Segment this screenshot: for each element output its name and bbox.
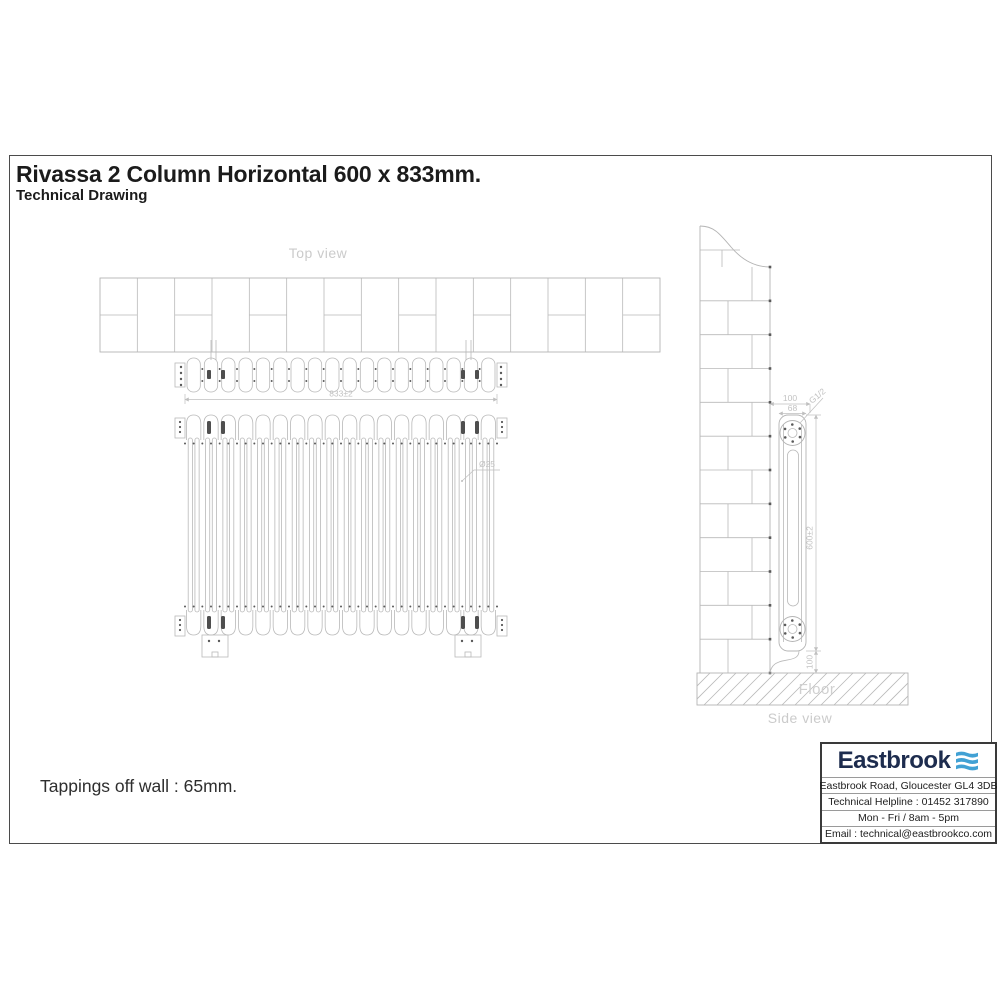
dim-floor-clearance: 100 <box>805 655 815 669</box>
page-subtitle: Technical Drawing <box>16 187 481 204</box>
side-view-floor: Floor <box>665 673 931 705</box>
brand-logo: Eastbrook <box>822 744 995 777</box>
technical-drawing: Top view 833±2 Ø25 Floor Si <box>0 0 1000 1000</box>
brand-address: Eastbrook Road, Gloucester GL4 3DB <box>822 777 995 793</box>
top-view-label: Top view <box>289 245 348 261</box>
dim-height: 600±2 <box>805 526 815 550</box>
dim-column-diameter: Ø25 <box>479 459 495 469</box>
dim-wall-to-front: 100 <box>783 393 797 403</box>
title-block: Rivassa 2 Column Horizontal 600 x 833mm.… <box>16 161 481 204</box>
dim-overall-width: 833±2 <box>329 389 353 399</box>
top-view-radiator <box>175 358 507 392</box>
front-view-radiator <box>175 415 507 657</box>
manufacturer-info-box: Eastbrook Eastbrook Road, Gloucester GL4… <box>820 742 997 844</box>
dim-depth: 68 <box>788 403 798 413</box>
top-view-wall <box>100 278 660 352</box>
brand-name: Eastbrook <box>838 747 951 775</box>
brand-helpline: Technical Helpline : 01452 317890 <box>822 793 995 809</box>
brand-email: Email : technical@eastbrookco.com <box>822 826 995 842</box>
dim-tapping-thread: G1/2 <box>807 386 828 406</box>
side-view-label: Side view <box>768 710 833 726</box>
side-view-foot-bracket <box>770 651 799 672</box>
side-view-wall <box>700 226 771 674</box>
tappings-note: Tappings off wall : 65mm. <box>40 776 237 797</box>
floor-label: Floor <box>799 681 836 698</box>
top-view-brackets <box>211 340 471 360</box>
brand-waves-icon <box>955 750 979 772</box>
page-title: Rivassa 2 Column Horizontal 600 x 833mm. <box>16 161 481 187</box>
brand-hours: Mon - Fri / 8am - 5pm <box>822 810 995 826</box>
side-view-radiator <box>770 415 806 672</box>
